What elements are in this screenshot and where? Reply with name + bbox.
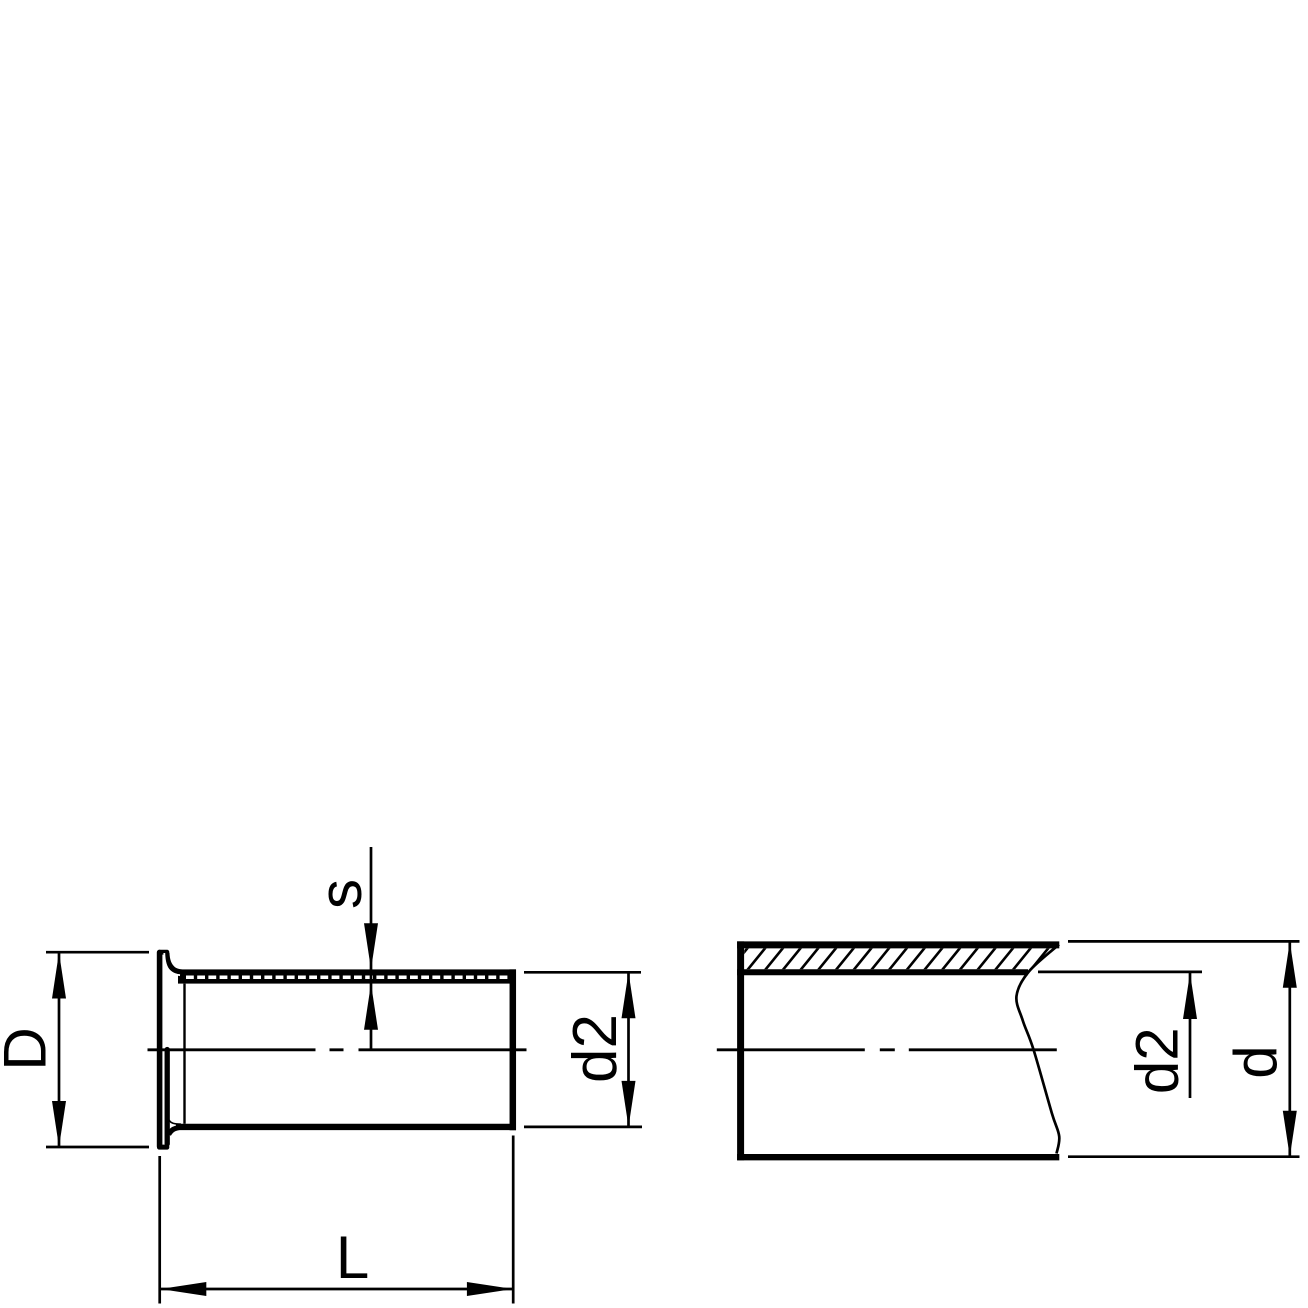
svg-text:d: d (1222, 1045, 1289, 1078)
svg-text:d2: d2 (1124, 1027, 1191, 1094)
svg-text:D: D (0, 1027, 59, 1070)
svg-text:L: L (336, 1224, 369, 1291)
svg-text:d2: d2 (561, 1014, 630, 1083)
svg-text:s: s (307, 879, 374, 909)
